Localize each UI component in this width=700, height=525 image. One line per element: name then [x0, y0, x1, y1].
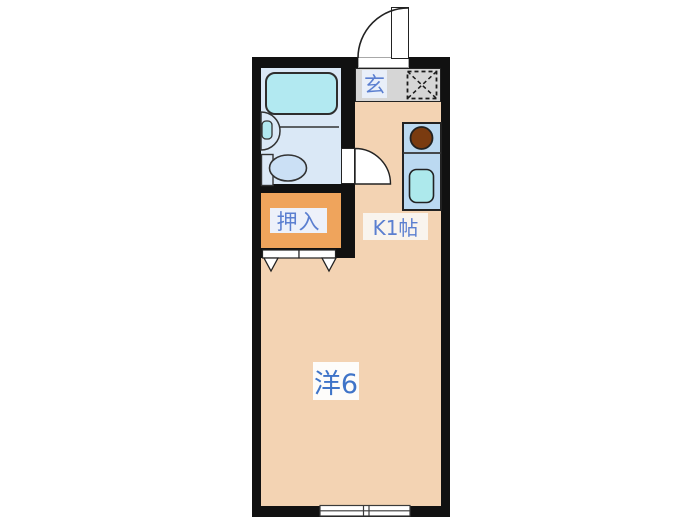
kitchen-counter [402, 122, 442, 211]
closet-label: 押入 [270, 208, 327, 233]
entrance-door-leaf [391, 7, 409, 59]
kitchen-label: K1帖 [363, 213, 428, 240]
bathtub [265, 72, 338, 115]
floorplan-canvas: 玄 K1帖 押入 洋6 [0, 0, 700, 525]
main-room-label: 洋6 [313, 362, 359, 400]
bathroom-door-leaf [341, 148, 355, 184]
entrance-label: 玄 [362, 70, 387, 98]
